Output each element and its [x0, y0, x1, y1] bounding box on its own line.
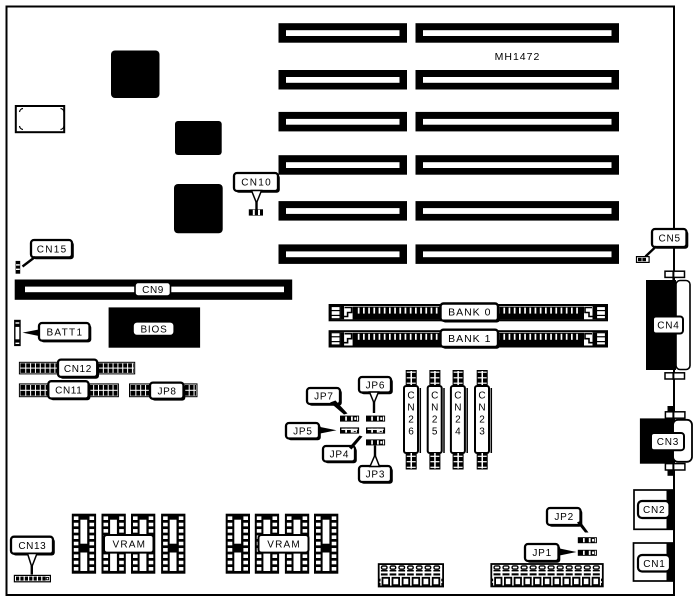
svg-text:JP7: JP7: [314, 392, 334, 403]
svg-text:CN5: CN5: [658, 234, 680, 245]
svg-text:CN10: CN10: [241, 178, 272, 189]
svg-text:JP1: JP1: [532, 548, 552, 559]
svg-text:BANK 0: BANK 0: [448, 307, 491, 319]
svg-text:2: 2: [432, 415, 438, 426]
svg-text:CN12: CN12: [64, 364, 92, 375]
svg-text:CN13: CN13: [18, 541, 46, 552]
svg-text:CN4: CN4: [657, 321, 679, 332]
svg-text:N: N: [431, 403, 438, 414]
svg-text:5: 5: [432, 427, 438, 438]
svg-text:2: 2: [408, 415, 414, 426]
svg-text:N: N: [454, 403, 461, 414]
svg-text:C: C: [431, 391, 438, 402]
svg-text:C: C: [407, 391, 414, 402]
svg-text:N: N: [407, 403, 414, 414]
svg-text:4: 4: [455, 427, 461, 438]
svg-text:C: C: [454, 391, 461, 402]
svg-text:BANK 1: BANK 1: [448, 333, 491, 345]
svg-text:JP8: JP8: [158, 386, 177, 397]
svg-text:VRAM: VRAM: [267, 539, 301, 550]
svg-text:3: 3: [479, 427, 485, 438]
svg-text:CN3: CN3: [657, 437, 679, 448]
svg-text:JP5: JP5: [293, 426, 313, 437]
svg-text:JP2: JP2: [554, 512, 574, 523]
svg-text:CN15: CN15: [37, 244, 68, 255]
svg-text:CN2: CN2: [643, 505, 665, 516]
svg-text:JP4: JP4: [330, 449, 350, 460]
svg-text:CN1: CN1: [643, 559, 665, 570]
svg-text:2: 2: [479, 415, 485, 426]
svg-text:CN11: CN11: [55, 385, 82, 396]
svg-text:N: N: [478, 403, 485, 414]
svg-text:BATT1: BATT1: [46, 327, 83, 338]
svg-text:CN9: CN9: [142, 285, 164, 296]
svg-text:VRAM: VRAM: [112, 539, 146, 550]
svg-text:6: 6: [408, 427, 414, 438]
svg-text:JP3: JP3: [366, 470, 386, 481]
svg-text:BIOS: BIOS: [140, 324, 167, 335]
svg-text:2: 2: [455, 415, 461, 426]
svg-text:MH1472: MH1472: [495, 51, 541, 63]
svg-text:JP6: JP6: [366, 380, 386, 391]
svg-text:C: C: [478, 391, 485, 402]
